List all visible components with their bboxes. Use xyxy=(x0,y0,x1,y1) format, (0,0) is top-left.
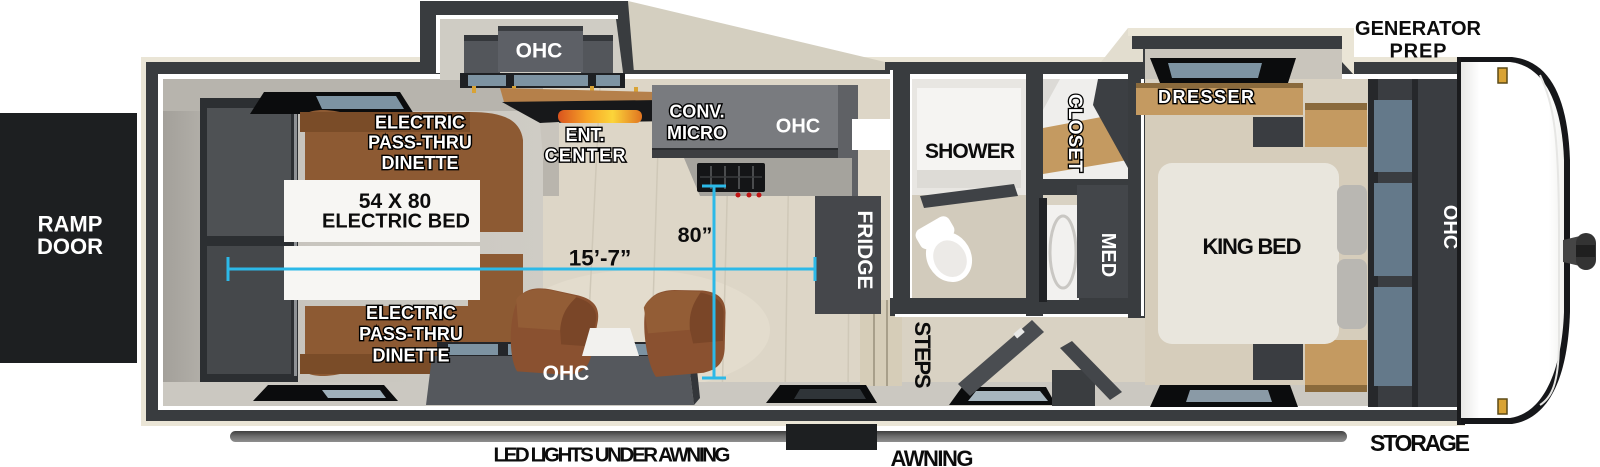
svg-text:LED LIGHTS UNDER AWNING: LED LIGHTS UNDER AWNING xyxy=(494,444,731,467)
svg-text:PASS-THRU: PASS-THRU xyxy=(359,324,463,344)
svg-text:MED: MED xyxy=(1097,233,1119,277)
svg-text:FRIDGE: FRIDGE xyxy=(853,211,876,290)
svg-text:MICRO: MICRO xyxy=(667,123,727,143)
svg-text:AWNING: AWNING xyxy=(891,446,974,467)
svg-text:OHC: OHC xyxy=(776,116,820,138)
svg-text:ELECTRIC: ELECTRIC xyxy=(366,303,456,323)
svg-text:GENERATOR: GENERATOR xyxy=(1355,18,1482,40)
svg-text:OHC: OHC xyxy=(543,362,590,385)
svg-text:STORAGE: STORAGE xyxy=(1370,430,1470,456)
svg-text:CONV.: CONV. xyxy=(669,102,724,122)
svg-text:ELECTRIC BED: ELECTRIC BED xyxy=(322,211,470,233)
svg-text:DINETTE: DINETTE xyxy=(372,346,449,366)
svg-text:80”: 80” xyxy=(678,223,713,247)
svg-text:CLOSET: CLOSET xyxy=(1064,94,1085,172)
svg-text:PREP: PREP xyxy=(1390,41,1447,63)
svg-text:ENT.: ENT. xyxy=(565,125,604,145)
svg-text:DINETTE: DINETTE xyxy=(381,153,458,173)
svg-text:CENTER: CENTER xyxy=(545,146,626,166)
svg-text:KING BED: KING BED xyxy=(1203,234,1302,259)
svg-text:RAMP: RAMP xyxy=(38,212,103,237)
svg-text:DOOR: DOOR xyxy=(37,234,103,259)
svg-text:PASS-THRU: PASS-THRU xyxy=(368,133,472,153)
svg-text:SHOWER: SHOWER xyxy=(925,140,1015,163)
svg-text:ELECTRIC: ELECTRIC xyxy=(375,113,465,133)
svg-text:OHC: OHC xyxy=(516,40,563,63)
svg-text:15’-7”: 15’-7” xyxy=(569,246,632,271)
svg-text:STEPS: STEPS xyxy=(910,322,935,389)
